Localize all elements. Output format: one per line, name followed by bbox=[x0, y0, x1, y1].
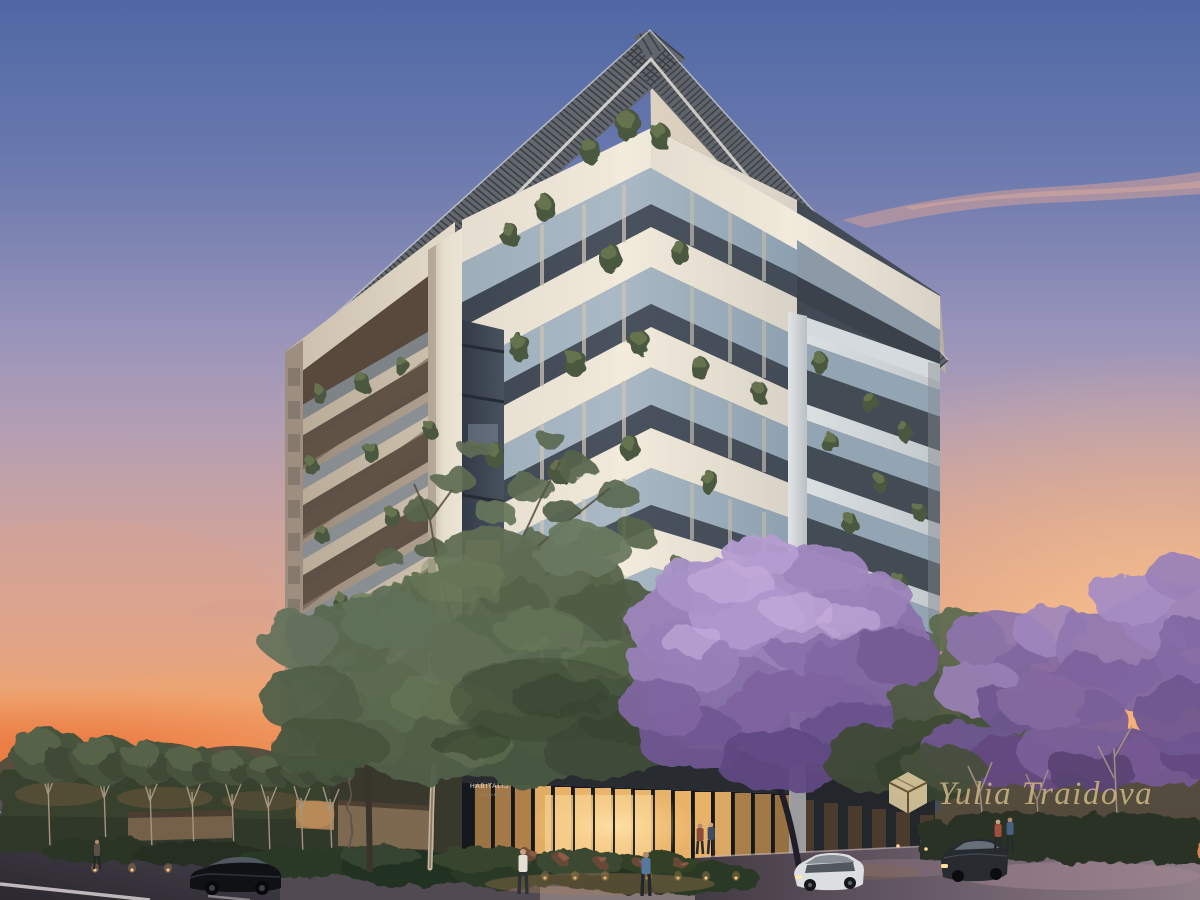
svg-text:Yulia Traidova: Yulia Traidova bbox=[938, 776, 1153, 812]
svg-text:HABITALIS: HABITALIS bbox=[470, 783, 509, 790]
svg-text:RESIDENCES: RESIDENCES bbox=[479, 792, 510, 797]
